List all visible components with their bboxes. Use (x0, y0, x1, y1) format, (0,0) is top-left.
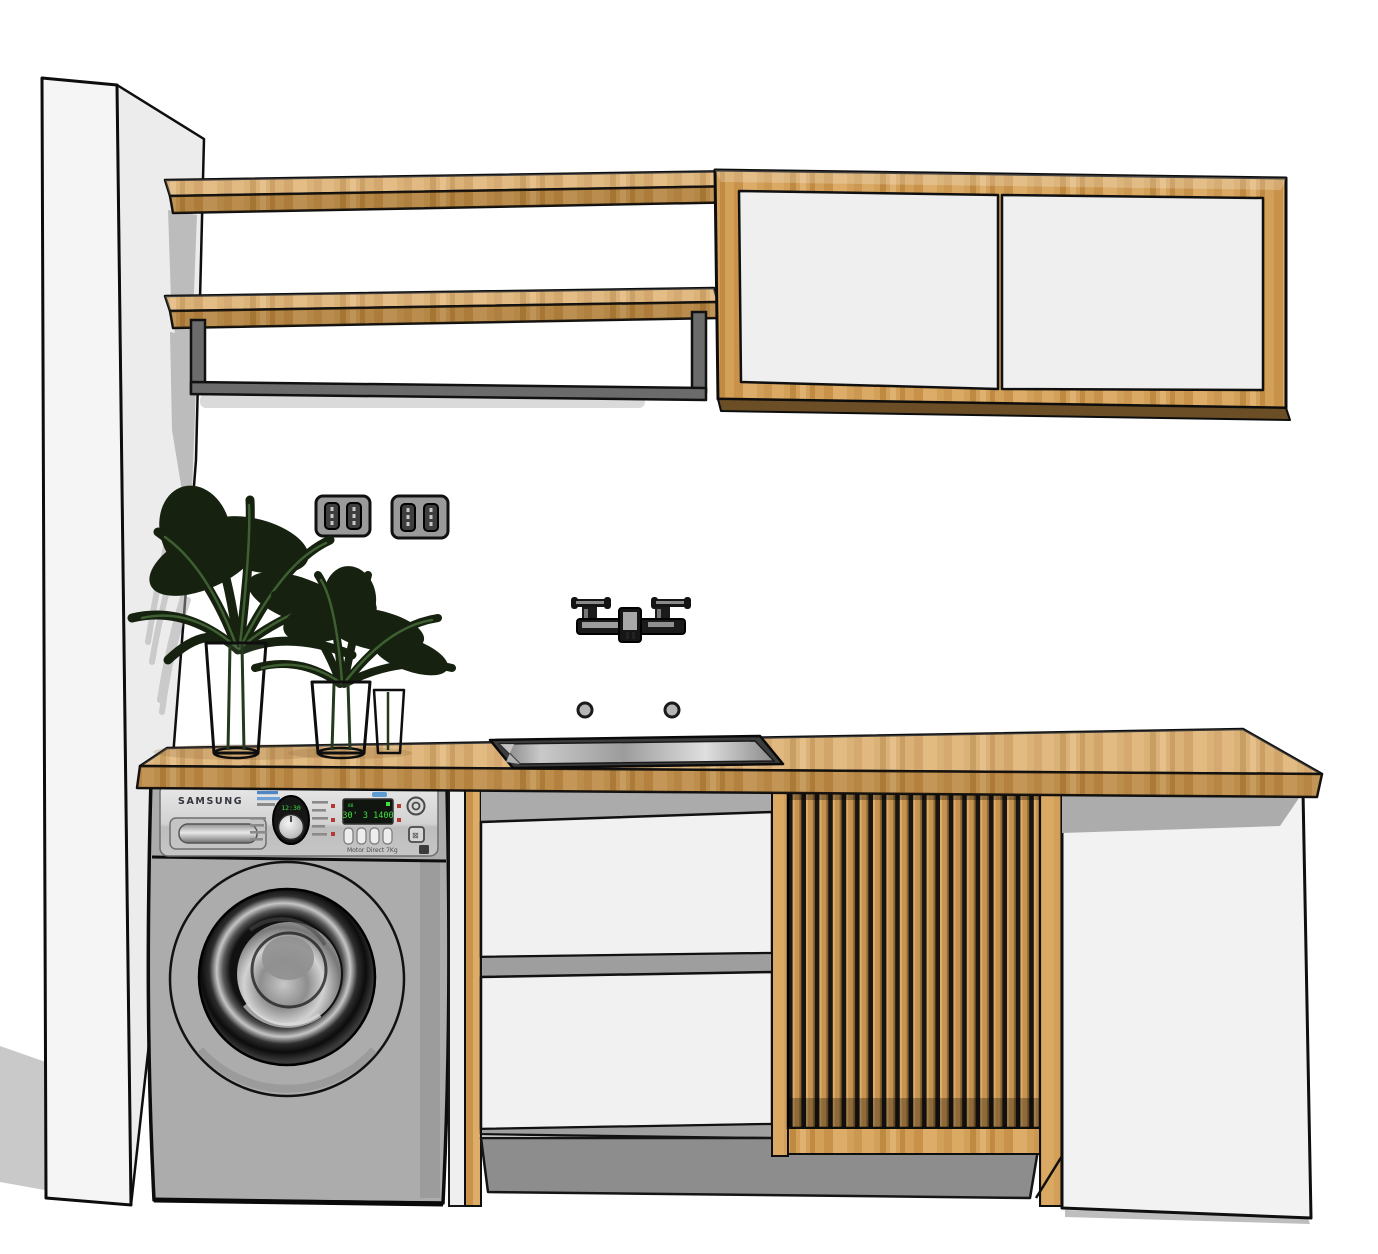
power-button[interactable] (408, 798, 425, 815)
right-cabinet-front[interactable] (1062, 786, 1311, 1218)
base-cabinets[interactable] (449, 784, 1311, 1218)
faucet-handle-highlight (656, 601, 684, 604)
display-right-dot (386, 802, 390, 806)
child-lock-glyph: ⊠ (412, 831, 419, 840)
wall-cabinet[interactable] (715, 170, 1290, 420)
model-badge (419, 845, 429, 854)
dial-display: 12:30 (281, 804, 301, 812)
side-panel-wood (465, 786, 481, 1206)
sink-basin (500, 741, 774, 764)
slatted-cabinet[interactable] (772, 786, 1062, 1206)
countertop[interactable] (137, 729, 1322, 797)
slat-bottom-rail (788, 1128, 1040, 1154)
washer-side-shade (420, 862, 440, 1198)
render-viewport: SAMSUNG 12:30 (0, 0, 1378, 1254)
scene-canvas: SAMSUNG 12:30 (0, 0, 1378, 1254)
power-outlet-1[interactable] (316, 496, 370, 536)
delay-end-tag (372, 792, 387, 797)
faucet-pipe-highlight (648, 622, 674, 627)
wire-vase-tall (206, 643, 266, 758)
wall-faucet[interactable] (571, 597, 691, 717)
upper-shelf[interactable] (165, 171, 747, 213)
drawer-unit[interactable] (481, 784, 772, 1138)
slat-bottom-shade (788, 1098, 1040, 1128)
power-outlet-2[interactable] (392, 496, 448, 538)
wall-cabinet-door-right[interactable] (1002, 195, 1263, 390)
wire-vase-short (312, 682, 404, 758)
pillar-front-face (42, 78, 131, 1205)
slatted-cabinet-door[interactable] (788, 786, 1040, 1128)
faucet-spout-face (623, 612, 637, 630)
drawer-top[interactable] (481, 812, 772, 957)
lower-shelf[interactable] (165, 288, 719, 328)
slat-frame-left-stile (772, 786, 788, 1156)
option-button-3[interactable] (370, 828, 379, 844)
wall-anchor-left (578, 703, 592, 717)
right-base-cabinet[interactable] (1062, 786, 1311, 1218)
option-button-4[interactable] (383, 828, 392, 844)
faucet-spout-notch (632, 632, 635, 639)
display-left-badge: 88 (348, 803, 354, 809)
drum-hub (262, 936, 314, 980)
washer-display: 88 30' 3 1400 (342, 799, 393, 824)
faucet-handle-highlight (576, 601, 604, 604)
samsung-logo: SAMSUNG (178, 796, 243, 807)
drawer-bottom[interactable] (481, 972, 772, 1129)
washer-door[interactable] (170, 862, 404, 1096)
option-button-1[interactable] (344, 828, 353, 844)
filler-panel-white (449, 788, 465, 1206)
program-dial[interactable]: 12:30 (273, 796, 309, 844)
display-readout: 30' 3 1400 (342, 811, 393, 821)
inset-sink[interactable] (490, 736, 783, 768)
faucet-spout-notch (626, 632, 629, 639)
model-label: Motor Direct 7Kg (347, 847, 398, 854)
start-led (397, 804, 401, 808)
washer-control-panel[interactable]: SAMSUNG 12:30 (160, 784, 438, 856)
pause-led (397, 818, 401, 822)
slat-frame-right-stile (1040, 786, 1062, 1206)
washing-machine[interactable]: SAMSUNG 12:30 (148, 780, 449, 1204)
wall-cabinet-door-left[interactable] (739, 191, 998, 389)
rail-right-post (692, 312, 706, 392)
option-button-2[interactable] (357, 828, 366, 844)
wall-anchor-right (665, 703, 679, 717)
detergent-drawer-handle (179, 824, 257, 843)
